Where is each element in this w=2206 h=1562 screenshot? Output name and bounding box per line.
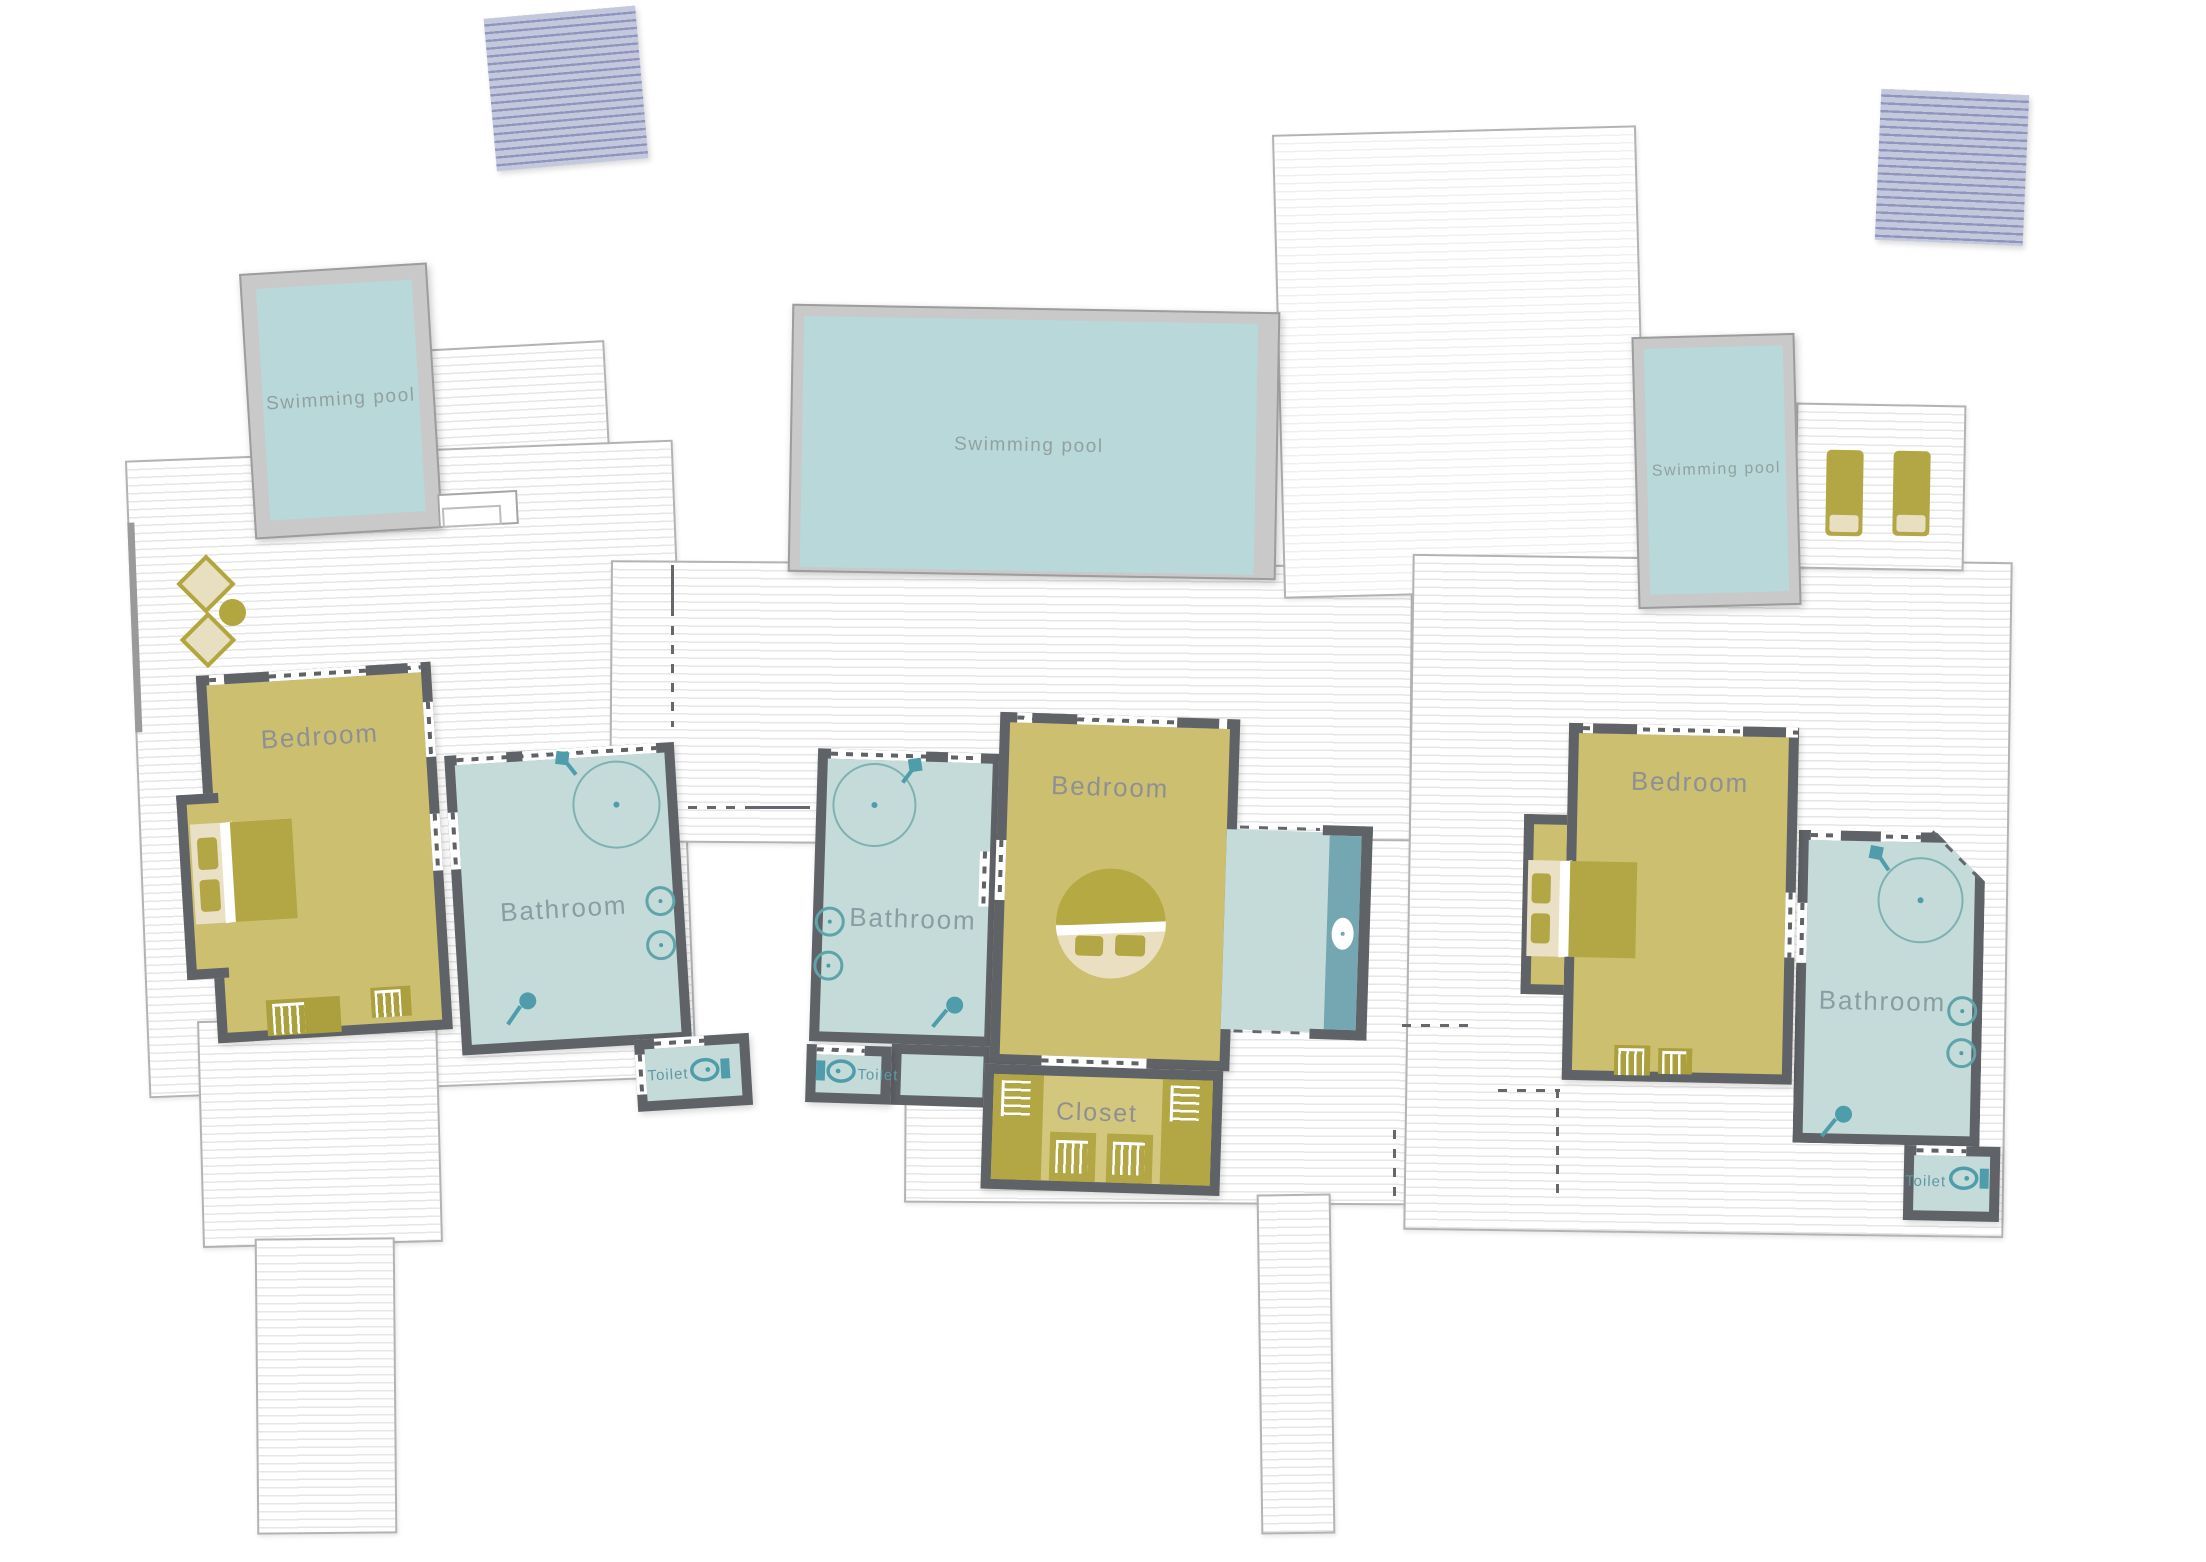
bed-duvet [1568,861,1637,958]
bedroom-label: Bedroom [1051,770,1170,805]
toilet-label: Toilet [857,1066,899,1084]
door-opening [817,1044,865,1056]
toilet-icon [1946,1164,1993,1193]
toilet-icon [812,1056,859,1085]
pillow-icon [1531,873,1551,903]
pool-center: Swimming pool [788,304,1281,580]
rug-icon [1658,1048,1693,1075]
toilet-label: Toilet [1905,1173,1946,1191]
deck-left-strip [255,1237,398,1534]
deck-bottom-strip [1257,1194,1336,1535]
suite-right: Bedroom Bathroom Toilet [1503,707,2024,1238]
deck-edge [127,522,142,732]
pool-label: Swimming pool [266,384,417,415]
floor-plan: Swimming pool Swimming pool Swimming poo… [0,0,2206,1562]
pool-right-water: Swimming pool [1644,345,1789,595]
window [423,702,436,758]
sun-lounger-icon [1892,451,1930,537]
pool-center-water: Swimming pool [800,316,1258,575]
door-opening [430,813,443,871]
rug-icon [266,996,342,1036]
pillow-icon [1115,935,1146,957]
lounger-cushion [1829,515,1858,533]
pergola-top-right [1875,89,2029,246]
sun-lounger-icon [1825,450,1863,537]
wall-segment [1177,717,1219,728]
lounger-cushion [1896,515,1925,533]
bathroom-label: Bathroom [849,902,977,937]
wardrobe-fringe [1055,1140,1088,1174]
wardrobe-block [1106,1133,1154,1183]
outdoor-shower [1221,829,1330,1032]
door-opening [1796,903,1807,963]
toilet-label: Toilet [647,1065,689,1084]
side-table-icon [219,599,246,626]
rug-icon [1614,1045,1651,1076]
wardrobe-fringe [1170,1085,1200,1122]
suite-left: Bedroom Bathroom Toilet [150,632,779,1168]
wall-segment [1593,723,1637,734]
rug-fringe [1662,1051,1686,1074]
toilet-icon [687,1054,735,1085]
pool-steps-inner [442,505,502,528]
wall-segment [1841,831,1881,842]
bed-duvet [230,818,298,922]
closet-label: Closet [1056,1097,1139,1129]
door-opening [1784,892,1795,957]
pool-label: Swimming pool [954,433,1104,458]
pool-left: Swimming pool [239,263,443,540]
deck-loungers [1794,403,1967,572]
pool-right: Swimming pool [1631,333,1801,609]
wardrobe-fringe [1112,1142,1145,1176]
roofline-dash [1393,1130,1396,1204]
suite-center: Bedroom Bathroom Toilet Closet [792,696,1397,1204]
roofline-dash [1402,1024,1468,1027]
wall-segment [1323,825,1373,837]
door-opening [978,851,990,906]
wall-segment [1032,713,1077,724]
pool-label: Swimming pool [1652,459,1782,480]
rug-fringe [1618,1048,1645,1076]
deck-center-tall [1272,125,1648,598]
pillow-icon [197,837,219,870]
wardrobe-block [991,1074,1044,1181]
round-bed-duvet [1056,867,1168,929]
bathroom-label: Bathroom [1819,985,1947,1019]
rug-fringe [374,989,402,1018]
pergola-top-left [484,6,649,172]
bathroom-center-ext [890,1044,994,1108]
door-opening [995,840,1007,900]
rug-fringe [272,1002,306,1035]
pillow-icon [1531,913,1551,943]
wardrobe-block [1049,1132,1097,1182]
wardrobe-fringe [1001,1080,1031,1117]
wall-segment [506,751,523,762]
wall-segment [926,752,948,763]
pillow-icon [199,879,221,912]
door-opening [1916,1145,1966,1156]
pool-steps-icon [437,490,519,528]
roofline [671,565,674,607]
rug-icon [370,986,412,1018]
wall-segment [1309,1029,1366,1041]
wardrobe-block [1160,1079,1213,1186]
bedroom-label: Bedroom [1631,766,1750,799]
pool-left-water: Swimming pool [256,279,426,520]
wall-segment [1743,727,1786,738]
pillow-icon [1075,935,1104,956]
